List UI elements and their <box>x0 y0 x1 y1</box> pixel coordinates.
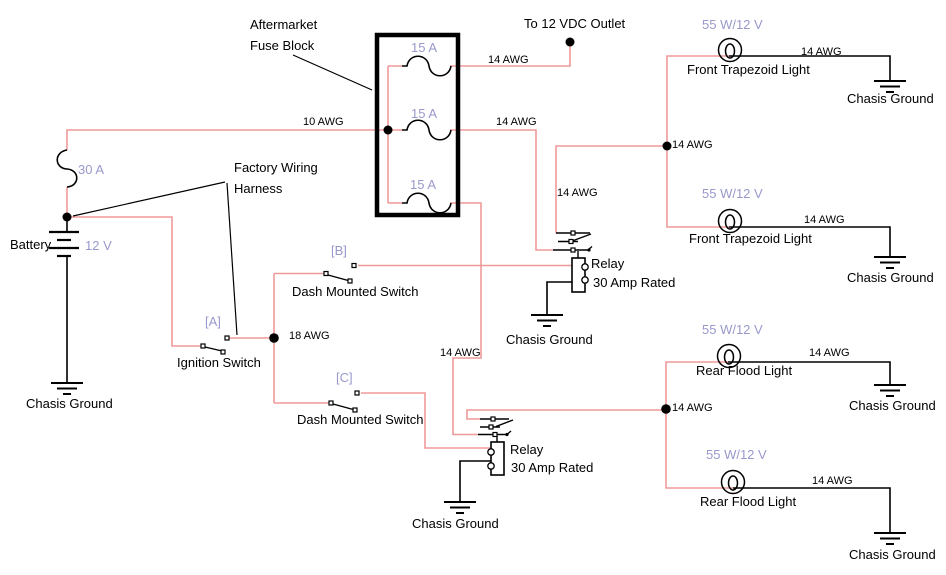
wire-gauge-label: 14 AWG <box>801 46 842 58</box>
junction-dots <box>63 38 672 414</box>
chassis-ground-label: Chasis Ground <box>849 399 936 413</box>
wire-gauge-label: 14 AWG <box>488 54 529 66</box>
relay-rating-label: 30 Amp Rated <box>593 276 675 290</box>
lamp-rating-label: 55 W/12 V <box>702 323 763 337</box>
battery-voltage-label: 12 V <box>85 239 112 253</box>
pointer-harness-battery <box>73 182 225 216</box>
wire-gauge-label: 14 AWG <box>672 139 713 151</box>
lamp-rating-label: 55 W/12 V <box>706 448 767 462</box>
chassis-ground-label: Chasis Ground <box>506 333 593 347</box>
rear-flood-light-2-icon <box>722 471 745 494</box>
rear-flood-light-label: Rear Flood Light <box>700 495 796 509</box>
front-trapezoid-light-label: Front Trapezoid Light <box>689 232 812 246</box>
ground-battery-icon <box>51 383 83 394</box>
junction-outlet <box>566 38 575 47</box>
junction-front-lights <box>663 142 672 151</box>
fuse2-rating-label: 15 A <box>411 107 437 121</box>
ground-front2-icon <box>874 257 906 268</box>
wire-gauge-label-18awg: 18 AWG <box>289 330 330 342</box>
pointer-fuse-block <box>293 55 372 90</box>
ground-relay2-icon <box>444 502 476 513</box>
junction-rear-lights <box>661 404 671 414</box>
wire-battery-to-fuse-top <box>67 130 388 150</box>
relay-label: Relay <box>591 257 624 271</box>
dash-switch-c-symbol <box>329 391 359 412</box>
lamp-rating-label: 55 W/12 V <box>702 187 763 201</box>
wiring-diagram-canvas <box>0 0 946 575</box>
junction-battery <box>63 213 72 222</box>
fuse-30a-rating-label: 30 A <box>78 163 104 177</box>
aftermarket-fuse-block-label-line2: Fuse Block <box>250 39 314 53</box>
chassis-ground-label: Chasis Ground <box>847 271 934 285</box>
relay2-coil <box>491 442 504 475</box>
junction-ignition <box>269 333 279 343</box>
front-trapezoid-light-1-icon <box>719 39 742 62</box>
lamp-symbols <box>718 39 745 494</box>
ignition-switch-symbol <box>201 336 229 354</box>
rear-flood-light-label: Rear Flood Light <box>696 364 792 378</box>
factory-wiring-harness-label-line2: Harness <box>234 182 282 196</box>
battery-label: Battery <box>10 238 51 252</box>
front-trapezoid-light-2-icon <box>719 210 742 233</box>
ignition-switch-label: Ignition Switch <box>177 356 261 370</box>
wire-gauge-label: 14 AWG <box>804 214 845 226</box>
chassis-ground-label: Chasis Ground <box>412 517 499 531</box>
ground-rear2-icon <box>874 533 906 544</box>
junction-fuse-bus <box>384 126 393 135</box>
to-12vdc-outlet-label: To 12 VDC Outlet <box>524 17 625 31</box>
fuse3-rating-label: 15 A <box>410 178 436 192</box>
wire-gauge-label: 14 AWG <box>812 475 853 487</box>
fuse1-rating-label: 15 A <box>411 41 437 55</box>
front-trapezoid-light-label: Front Trapezoid Light <box>687 63 810 77</box>
chassis-ground-icons <box>51 81 906 544</box>
chassis-ground-label: Chasis Ground <box>26 397 113 411</box>
wire-battery-to-ignition <box>67 217 201 346</box>
wire-gauge-label-10awg: 10 AWG <box>303 116 344 128</box>
wire-gauge-label: 14 AWG <box>496 116 537 128</box>
relay-label: Relay <box>510 443 543 457</box>
relay2-symbol <box>478 417 513 475</box>
factory-wiring-harness-label-line1: Factory Wiring <box>234 161 318 175</box>
fuse-15a-3-icon <box>402 193 451 213</box>
chassis-ground-label: Chasis Ground <box>849 548 936 562</box>
fuse-30a-icon <box>57 150 77 187</box>
wire-relay1-coil-ground <box>547 282 572 314</box>
lamp-rating-label: 55 W/12 V <box>702 18 763 32</box>
wire-rear-lights-feed <box>666 362 733 488</box>
tag-b-label: [B] <box>331 244 347 258</box>
ground-relay1-icon <box>531 315 563 326</box>
ground-rear1-icon <box>874 385 906 396</box>
dash-mounted-switch-label: Dash Mounted Switch <box>292 285 418 299</box>
aftermarket-fuse-block-label-line1: Aftermarket <box>250 18 317 32</box>
wire-gauge-label: 14 AWG <box>809 347 850 359</box>
wire-relay2-to-rear-junction <box>467 410 666 419</box>
chassis-ground-label: Chasis Ground <box>847 92 934 106</box>
wire-relay2-coil-ground <box>460 461 491 501</box>
relay1-coil <box>572 258 585 292</box>
relay-rating-label: 30 Amp Rated <box>511 461 593 475</box>
fuse-15a-1-icon <box>402 56 451 76</box>
dash-switch-b-symbol <box>324 264 356 284</box>
tag-c-label: [C] <box>336 371 353 385</box>
relay1-symbol <box>553 231 592 292</box>
wire-gauge-label: 14 AWG <box>440 347 481 359</box>
wire-fuse3-to-relay2 <box>388 203 481 435</box>
pointer-harness-ignition <box>227 183 237 335</box>
wiring-diagram: Aftermarket Fuse Block To 12 VDC Outlet … <box>0 0 946 575</box>
battery-symbol <box>49 232 79 256</box>
wire-gauge-label: 14 AWG <box>557 187 598 199</box>
dash-mounted-switch-label: Dash Mounted Switch <box>297 413 423 427</box>
wire-gauge-label: 14 AWG <box>672 402 713 414</box>
fuse-15a-2-icon <box>402 120 451 140</box>
tag-a-label: [A] <box>205 315 221 329</box>
